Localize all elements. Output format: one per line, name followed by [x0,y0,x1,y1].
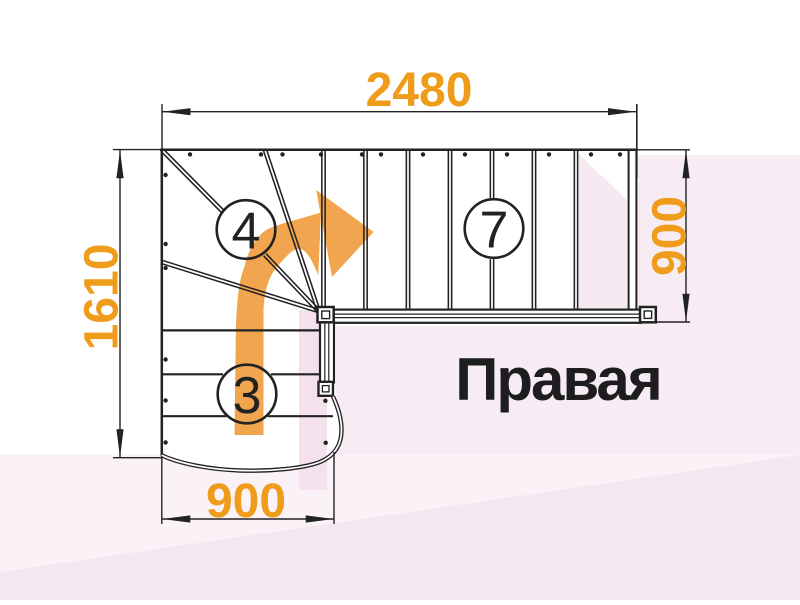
svg-text:7: 7 [480,201,509,259]
svg-text:2480: 2480 [366,64,473,117]
svg-text:4: 4 [232,202,261,260]
svg-text:900: 900 [644,196,697,276]
svg-text:900: 900 [206,475,286,528]
svg-text:3: 3 [233,367,262,425]
svg-text:Правая: Правая [455,346,661,413]
svg-text:1610: 1610 [76,244,129,351]
